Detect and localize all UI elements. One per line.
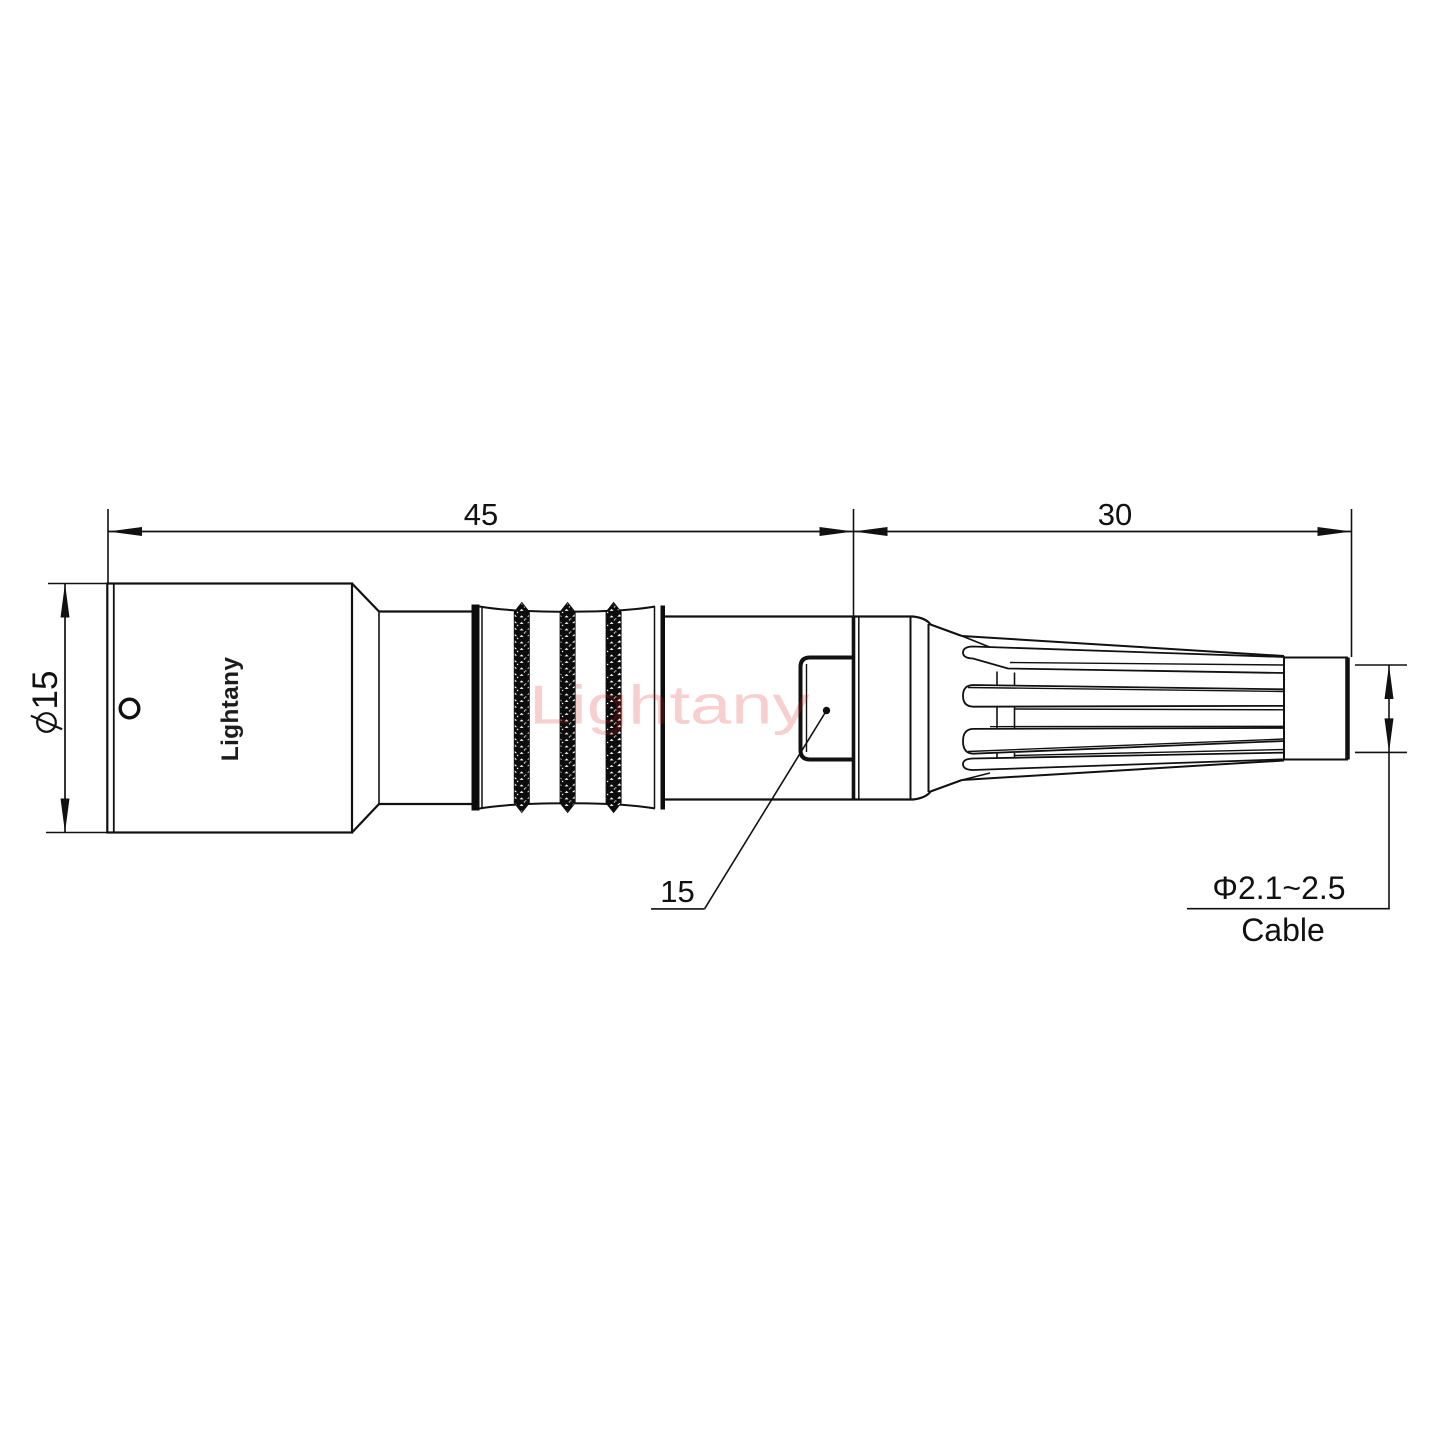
svg-text:15: 15 xyxy=(660,874,694,909)
svg-text:Cable: Cable xyxy=(1241,912,1325,948)
svg-text:15: 15 xyxy=(26,671,65,710)
svg-text:45: 45 xyxy=(464,497,498,532)
svg-text:Φ2.1~2.5: Φ2.1~2.5 xyxy=(1212,870,1345,906)
svg-text:30: 30 xyxy=(1098,497,1132,532)
svg-text:Lightany: Lightany xyxy=(217,657,244,762)
svg-text:Lightany: Lightany xyxy=(529,674,810,735)
